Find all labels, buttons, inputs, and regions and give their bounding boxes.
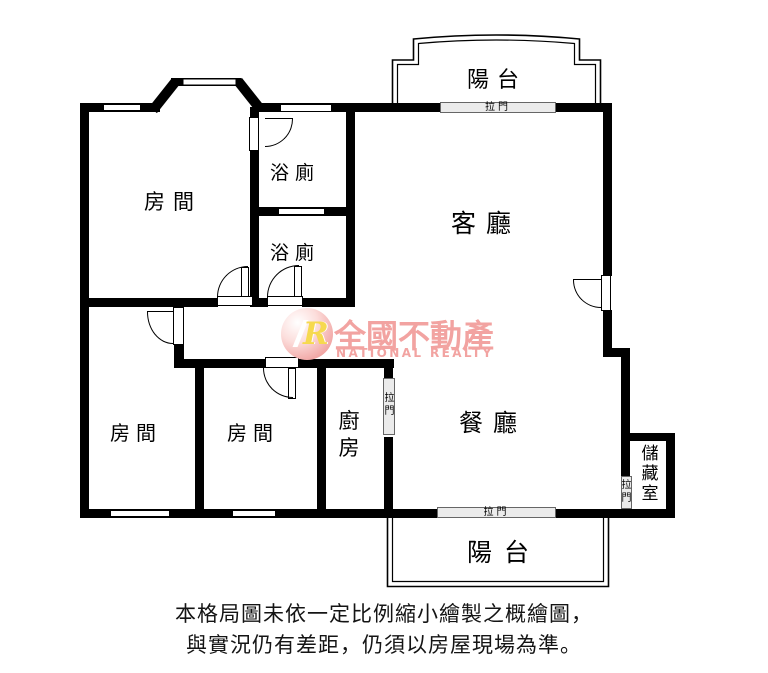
wall-bedroom-kitchen — [317, 359, 326, 518]
floorplan-canvas: 拉門 拉門 拉門 拉門 房間 浴廁 浴廁 客廳 餐廳 房間 房間 廚房 儲藏室 … — [0, 0, 768, 673]
label-bath-lower: 浴廁 — [260, 238, 330, 265]
wall-bedrooms-divider — [195, 368, 204, 518]
realty-logo-subtitle: NATIONAL REALTY — [336, 346, 494, 360]
wall-mid-horizontal-b — [252, 298, 268, 307]
window-bottom-mid — [232, 510, 276, 517]
window-bath-top — [280, 104, 332, 112]
window-bottom-left — [110, 510, 170, 517]
door-frame-living — [601, 275, 611, 311]
door-frame-bath-lower — [267, 296, 303, 306]
label-storage: 儲藏室 — [640, 444, 660, 504]
sliding-door-balcony-top-label: 拉門 — [440, 103, 556, 113]
realty-logo: R 全國不動產 NATIONAL REALTY — [281, 307, 496, 363]
window-bath-divider — [278, 208, 325, 215]
label-balcony-bottom: 陽台 — [466, 533, 542, 569]
label-bath-upper: 浴廁 — [260, 158, 330, 185]
sliding-door-storage-label: 拉門 — [621, 479, 632, 505]
wall-corridor-a — [174, 359, 266, 368]
label-dining: 餐廳 — [458, 403, 528, 438]
bay-window — [183, 79, 236, 85]
wall-mid-horizontal-c — [302, 298, 355, 307]
sliding-door-kitchen-label: 拉門 — [384, 392, 395, 418]
door-frame-bath-upper — [249, 117, 259, 151]
door-frame-bedroom-left — [173, 307, 184, 345]
label-kitchen: 廚房 — [337, 408, 361, 462]
wall-kitchen-right-b — [384, 437, 393, 518]
label-living: 客廳 — [450, 204, 522, 240]
label-bedroom-mid: 房間 — [218, 417, 288, 446]
wall-storage-right — [666, 433, 675, 518]
window-bedroom-top — [103, 104, 141, 111]
realty-logo-monogram: R — [303, 316, 329, 352]
sliding-door-balcony-bottom-label: 拉門 — [437, 508, 556, 518]
wall-left — [80, 103, 89, 518]
wall-right-mid — [621, 348, 630, 476]
door-frame-bedroom-top — [217, 296, 253, 306]
label-bedroom-left: 房間 — [101, 417, 171, 446]
wall-bath-right — [346, 107, 355, 307]
label-bedroom-top: 房間 — [138, 186, 208, 216]
realty-logo-badge-icon: R — [281, 308, 333, 360]
wall-mid-horizontal-a — [80, 298, 218, 307]
wall-bedroom-bath-b — [250, 151, 259, 307]
label-balcony-top: 陽台 — [462, 62, 532, 94]
wall-bedroom-bath-a — [250, 107, 259, 117]
wall-right-upper — [603, 103, 612, 276]
